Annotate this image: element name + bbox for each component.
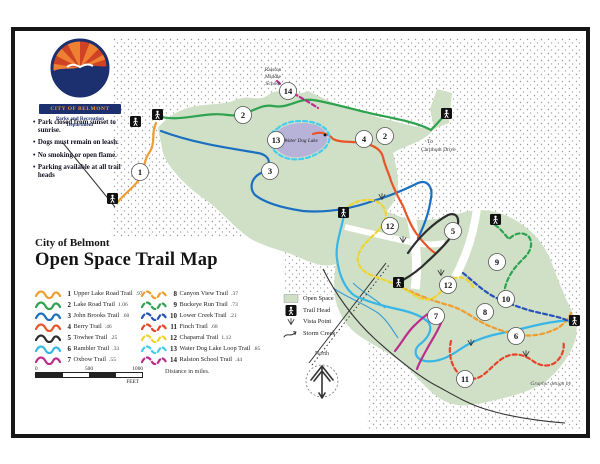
svg-text:13: 13 <box>272 135 281 145</box>
trail-distance: .60 <box>122 313 129 319</box>
scale-segment <box>89 373 116 377</box>
legend-trail-row: 1Upper Lake Road Trail.97 <box>35 288 143 299</box>
marker-11: 11 <box>457 371 474 388</box>
symbols-legend: Open Space Trail Head Vista Point Storm … <box>283 293 335 339</box>
bullet: • <box>33 119 35 134</box>
trail-name: Canyon View Trail <box>180 290 229 297</box>
svg-text:2: 2 <box>383 131 387 141</box>
trail-distance: .55 <box>109 357 116 363</box>
legend-trail-row: 10Lower Creek Trail.21 <box>141 310 260 321</box>
symbol-row-trail-head: Trail Head <box>283 305 335 317</box>
trailhead-icon <box>107 193 118 204</box>
symbol-label: Vista Point <box>303 318 331 325</box>
credit-line: Graphic design by <box>530 381 571 387</box>
compass-arrow <box>311 366 333 398</box>
marker-10: 10 <box>498 291 515 308</box>
trailhead-icon <box>441 108 452 119</box>
trail-distance: 1.06 <box>118 302 128 308</box>
trail-name: Finch Trail <box>180 323 208 330</box>
svg-text:3: 3 <box>268 166 272 176</box>
trail-line-sample <box>141 311 167 321</box>
trail-name: Water Dog Lake Loop Trail <box>180 345 251 352</box>
marker-12b: 12 <box>440 277 457 294</box>
scale-zero: 0 <box>35 366 38 372</box>
trail-name: Ralston School Trail <box>180 356 233 363</box>
rule-item: •No smoking or open flame. <box>33 152 123 160</box>
trail-number: 6 <box>61 345 71 353</box>
scale-unit: FEET <box>35 379 143 385</box>
scale-bar: 0 500 1000 FEET <box>35 366 143 385</box>
svg-text:11: 11 <box>461 374 469 384</box>
trail-line-sample <box>35 322 61 332</box>
scale-segment <box>36 373 63 377</box>
symbol-row-vista-point: Vista Point <box>283 316 335 328</box>
trail-number: 3 <box>61 312 71 320</box>
map-sheet: 1 2 2 3 4 5 6 7 8 9 10 11 12 12 13 14 Ra… <box>11 27 590 438</box>
trailhead-icon <box>152 109 163 120</box>
marker-5: 5 <box>445 223 462 240</box>
trail-line-sample <box>141 355 167 365</box>
trail-distance: .85 <box>253 346 260 352</box>
rule-text: Parking available at all trail heads <box>38 164 123 179</box>
trail-name: Lower Creek Trail <box>180 312 227 319</box>
svg-text:1: 1 <box>138 167 142 177</box>
marker-7: 7 <box>428 308 445 325</box>
rule-item: •Dogs must remain on leash. <box>33 139 123 147</box>
marker-14: 14 <box>280 83 297 100</box>
trail-distance: .68 <box>211 324 218 330</box>
bullet: • <box>33 164 35 179</box>
marker-12: 12 <box>382 218 399 235</box>
trail-distance: .73 <box>231 302 238 308</box>
rule-item: •Park closed from sunset to sunrise. <box>33 119 123 134</box>
svg-text:10: 10 <box>502 294 511 304</box>
trail-number: 4 <box>61 323 71 331</box>
trail-number: 13 <box>167 345 177 353</box>
rule-text: No smoking or open flame. <box>38 152 117 160</box>
svg-text:9: 9 <box>495 257 499 267</box>
trail-name: Rambler Trail <box>74 345 110 352</box>
scale-bar-segments <box>35 372 143 378</box>
trailhead-icon <box>393 277 404 288</box>
trail-number: 11 <box>167 323 177 331</box>
trail-line-sample <box>35 311 61 321</box>
legend-trail-row: 11Finch Trail.68 <box>141 321 260 332</box>
trail-legend-col2: 8Canyon View Trail.37 9Buckeye Run Trail… <box>141 288 260 365</box>
legend-trail-row: 2Lake Road Trail1.06 <box>35 299 143 310</box>
trail-number: 14 <box>167 356 177 364</box>
symbol-row-storm-creek: Storm Creek <box>283 328 335 340</box>
lake-label: Water Dog Lake <box>284 138 319 144</box>
legend-trail-row: 12Chaparral Trail1.12 <box>141 332 260 343</box>
trail-line-sample <box>35 300 61 310</box>
legend-trail-row: 9Buckeye Run Trail.73 <box>141 299 260 310</box>
distance-footnote: Distance in miles. <box>165 368 210 375</box>
trail-line-sample <box>35 355 61 365</box>
legend-trail-row: 7Oxbow Trail.55 <box>35 354 143 365</box>
legend-trail-row: 5Towhee Trail.25 <box>35 332 143 343</box>
trail-line-sample <box>141 344 167 354</box>
marker-3: 3 <box>262 163 279 180</box>
trail-number: 7 <box>61 356 71 364</box>
lake-poi-dot <box>324 134 327 137</box>
trailhead-icon <box>338 207 349 218</box>
legend-trail-row: 3John Brooks Trail.60 <box>35 310 143 321</box>
trail-name: John Brooks Trail <box>74 312 120 319</box>
trail-legend-col1: 1Upper Lake Road Trail.97 2Lake Road Tra… <box>35 288 143 365</box>
rule-text: Dogs must remain on leash. <box>38 139 119 147</box>
rule-text: Park closed from sunset to sunrise. <box>38 119 123 134</box>
marker-1: 1 <box>132 164 149 181</box>
compass-north-label: North <box>315 351 329 357</box>
trailhead-icon <box>569 315 580 326</box>
marker-6: 6 <box>508 328 525 345</box>
trail-line-sample <box>35 344 61 354</box>
scale-mid: 500 <box>85 366 93 372</box>
trail-line-sample <box>141 322 167 332</box>
trailhead-icon <box>130 116 141 127</box>
legend-trail-row: 14Ralston School Trail.44 <box>141 354 260 365</box>
map-title: Open Space Trail Map <box>35 250 218 271</box>
logo-banner: CITY OF BELMONT <box>39 104 121 114</box>
marker-2: 2 <box>235 107 252 124</box>
school-label-line1: Ralston <box>265 67 282 73</box>
school-label-line2: Middle <box>265 74 281 80</box>
trailhead-icon <box>490 214 501 225</box>
trail-line-sample <box>141 333 167 343</box>
svg-text:12: 12 <box>444 280 453 290</box>
school-label-line3: School <box>265 81 281 87</box>
compass-rose: North <box>299 347 345 407</box>
svg-text:8: 8 <box>483 307 487 317</box>
svg-text:5: 5 <box>451 226 455 236</box>
trail-number: 12 <box>167 334 177 342</box>
map-subtitle: City of Belmont <box>35 237 218 249</box>
legend-trail-row: 4Berry Trail.46 <box>35 321 143 332</box>
trail-name: Lake Road Trail <box>74 301 116 308</box>
marker-13: 13 <box>268 132 285 149</box>
marker-4: 4 <box>356 131 373 148</box>
trail-number: 2 <box>61 301 71 309</box>
scale-segment <box>116 373 143 377</box>
svg-text:2: 2 <box>241 110 245 120</box>
trail-name: Upper Lake Road Trail <box>74 290 133 297</box>
carlmont-label-line2: Carlmont Drive <box>421 147 456 153</box>
svg-text:6: 6 <box>514 331 518 341</box>
trail-number: 10 <box>167 312 177 320</box>
trailhead-icon <box>283 305 299 316</box>
trail-line-sample <box>35 289 61 299</box>
trail-name: Berry Trail <box>74 323 102 330</box>
trail-name: Chaparral Trail <box>180 334 219 341</box>
trail-distance: 1.12 <box>221 335 231 341</box>
marker-9: 9 <box>489 254 506 271</box>
city-logo-seal <box>47 37 113 99</box>
bullet: • <box>33 152 35 160</box>
trail-distance: .37 <box>231 291 238 297</box>
trail-distance: .25 <box>110 335 117 341</box>
bullet: • <box>33 139 35 147</box>
trail-number: 8 <box>167 290 177 298</box>
rule-item: •Parking available at all trail heads <box>33 164 123 179</box>
trail-distance: .21 <box>230 313 237 319</box>
trail-number: 9 <box>167 301 177 309</box>
park-rules-list: •Park closed from sunset to sunrise. •Do… <box>33 119 123 185</box>
legend-trail-row: 8Canyon View Trail.37 <box>141 288 260 299</box>
scale-segment <box>63 373 90 377</box>
legend-trail-row: 13Water Dog Lake Loop Trail.85 <box>141 343 260 354</box>
trail-number: 1 <box>61 290 71 298</box>
scale-max: 1000 <box>132 366 143 372</box>
trail-distance: .44 <box>235 357 242 363</box>
marker-8: 8 <box>477 304 494 321</box>
trail-line-sample <box>141 300 167 310</box>
marker-2b: 2 <box>377 128 394 145</box>
symbol-label: Storm Creek <box>303 330 335 337</box>
creek-icon <box>283 328 299 339</box>
trail-name: Oxbow Trail <box>74 356 107 363</box>
trail-name: Towhee Trail <box>74 334 108 341</box>
trail-line-sample <box>35 333 61 343</box>
page: 1 2 2 3 4 5 6 7 8 9 10 11 12 12 13 14 Ra… <box>0 0 600 464</box>
trail-name: Buckeye Run Trail <box>180 301 228 308</box>
svg-text:14: 14 <box>284 86 293 96</box>
city-logo: CITY OF BELMONT Parks and Recreation Dep… <box>39 37 121 128</box>
trail-distance: .33 <box>112 346 119 352</box>
trail-number: 5 <box>61 334 71 342</box>
vista-point-icon <box>283 316 299 327</box>
legend-trail-row: 6Rambler Trail.33 <box>35 343 143 354</box>
symbol-label: Open Space <box>303 295 334 302</box>
scale-labels: 0 500 1000 <box>35 366 143 372</box>
title-block: City of Belmont Open Space Trail Map <box>35 237 218 271</box>
carlmont-label-line1: To <box>427 139 433 145</box>
svg-text:12: 12 <box>386 221 395 231</box>
trail-line-sample <box>141 289 167 299</box>
trail-distance: .46 <box>105 324 112 330</box>
open-space-swatch <box>283 293 299 304</box>
symbol-label: Trail Head <box>303 307 330 314</box>
symbol-row-open-space: Open Space <box>283 293 335 305</box>
